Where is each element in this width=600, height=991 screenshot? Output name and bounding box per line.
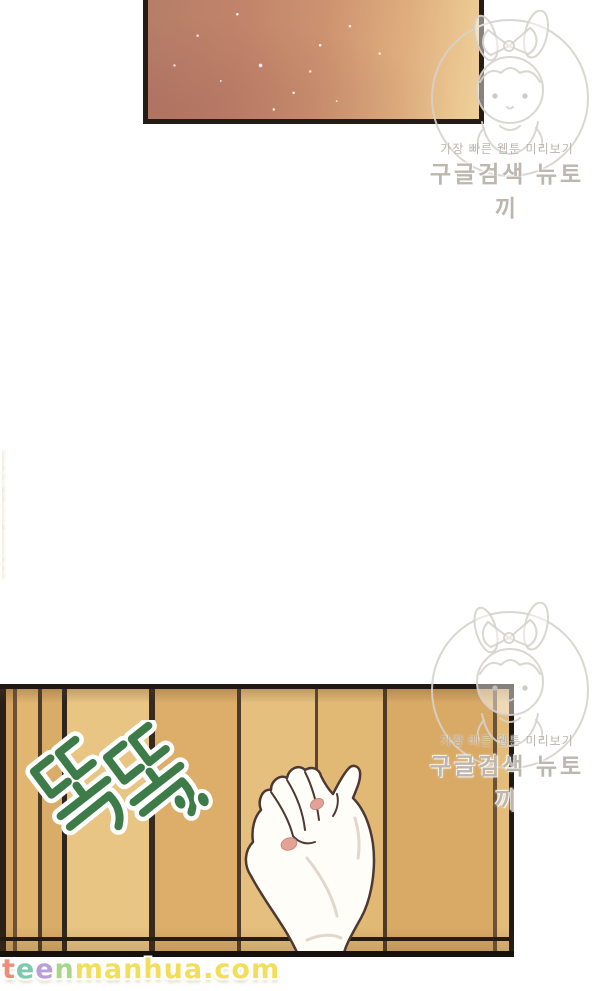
comic-panel-door: 똑똑..: [0, 684, 514, 957]
site-wordmark-bottom: teenmanhua.com: [2, 954, 280, 985]
knocking-hand-drawing: [237, 758, 377, 957]
newtoki-tagline: 가장 빠른 웹툰 미리보기: [418, 140, 596, 157]
knock-sfx-text: 똑똑..: [0, 689, 1, 690]
comic-panel-top: [143, 0, 484, 124]
site-wordmark-left: teenmanhua.com: [3, 485, 19, 579]
knock-sfx-drawing: [15, 720, 227, 865]
newtoki-brand: 구글검색 뉴토끼: [418, 155, 596, 223]
site-wordmark-left-text: teenmanhua.com: [0, 450, 3, 579]
webtoon-page: 가장 빠른 웹툰 미리보기 구글검색 뉴토끼 teenmanhua.com: [0, 0, 600, 991]
